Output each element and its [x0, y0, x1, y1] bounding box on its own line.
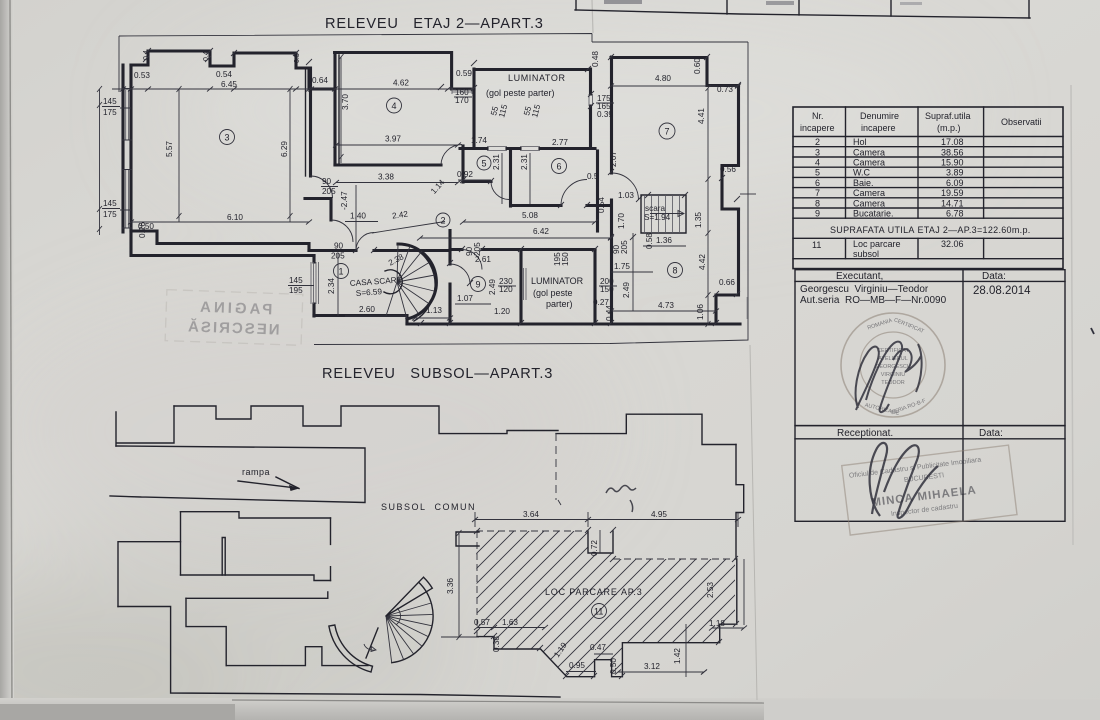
svg-text:4: 4 [392, 101, 397, 111]
svg-text:1.63: 1.63 [502, 618, 518, 627]
svg-text:3: 3 [815, 147, 820, 157]
svg-text:Data:: Data: [979, 428, 1003, 439]
svg-text:0.66: 0.66 [719, 278, 735, 287]
svg-text:2.53: 2.53 [706, 582, 715, 598]
svg-text:Camera: Camera [853, 188, 885, 198]
svg-text:0.50: 0.50 [609, 658, 618, 674]
svg-text:Observatii: Observatii [1001, 117, 1042, 127]
svg-text:2.77: 2.77 [552, 138, 568, 147]
svg-text:(m.p.): (m.p.) [937, 123, 961, 133]
svg-text:Denumire: Denumire [860, 111, 899, 121]
svg-text:0.39: 0.39 [597, 110, 613, 119]
svg-text:Aut.seria RO—MB—F—Nr.0090: Aut.seria RO—MB—F—Nr.0090 [800, 295, 947, 306]
svg-text:PAGINA: PAGINA [197, 299, 273, 319]
svg-text:145: 145 [289, 276, 303, 285]
svg-text:38.56: 38.56 [941, 147, 964, 157]
svg-text:2.49: 2.49 [488, 279, 497, 295]
svg-text:0.54: 0.54 [216, 70, 232, 79]
svg-text:4.80: 4.80 [655, 74, 671, 83]
svg-text:parter): parter) [546, 299, 573, 309]
svg-text:6.42: 6.42 [533, 227, 549, 236]
svg-text:Bucatarie.: Bucatarie. [853, 209, 894, 219]
svg-text:205: 205 [331, 252, 345, 261]
svg-text:6.45: 6.45 [221, 80, 237, 89]
svg-text:5.57: 5.57 [165, 141, 174, 157]
svg-text:SUBSOL COMUN: SUBSOL COMUN [381, 502, 476, 512]
svg-text:0.57: 0.57 [474, 618, 490, 627]
svg-text:3.38: 3.38 [378, 173, 394, 182]
svg-text:0.47: 0.47 [590, 643, 606, 652]
svg-text:145: 145 [103, 97, 117, 106]
svg-text:1.07: 1.07 [457, 294, 473, 303]
svg-text:2.34: 2.34 [327, 278, 336, 294]
svg-text:S=1.94: S=1.94 [644, 213, 671, 222]
svg-text:1.03: 1.03 [618, 191, 634, 200]
svg-text:32.06: 32.06 [941, 239, 964, 249]
svg-text:1.13: 1.13 [426, 306, 442, 315]
svg-text:GEORGESCU: GEORGESCU [875, 364, 911, 370]
svg-text:0.56: 0.56 [720, 165, 736, 174]
svg-text:0.95: 0.95 [569, 661, 585, 670]
svg-text:175: 175 [103, 210, 117, 219]
svg-text:90: 90 [322, 177, 332, 186]
svg-text:6.10: 6.10 [227, 213, 243, 222]
svg-text:Camera: Camera [853, 158, 885, 168]
svg-text:3: 3 [225, 133, 230, 143]
svg-text:6: 6 [815, 178, 820, 188]
svg-text:Baie.: Baie. [853, 178, 874, 188]
svg-text:incapere: incapere [861, 123, 896, 133]
svg-text:1.70: 1.70 [617, 213, 626, 229]
svg-text:9: 9 [815, 209, 820, 219]
svg-text:Camera: Camera [853, 198, 885, 208]
svg-text:8: 8 [815, 198, 820, 208]
svg-text:4: 4 [815, 158, 820, 168]
svg-text:150: 150 [561, 252, 570, 266]
svg-text:4.41: 4.41 [697, 108, 706, 124]
svg-text:Loc parcare: Loc parcare [853, 239, 901, 249]
svg-text:scara: scara [645, 204, 665, 213]
svg-text:Hol: Hol [853, 137, 867, 147]
svg-text:6: 6 [557, 162, 562, 172]
svg-text:2.07: 2.07 [609, 151, 618, 167]
svg-text:0.54: 0.54 [597, 197, 606, 213]
svg-text:0.38: 0.38 [492, 636, 501, 652]
svg-text:2: 2 [441, 216, 446, 226]
svg-text:14.71: 14.71 [941, 198, 964, 208]
svg-text:2.31: 2.31 [492, 154, 501, 170]
svg-text:Camera: Camera [853, 147, 885, 157]
svg-text:Receptionat.: Receptionat. [837, 428, 893, 439]
svg-text:-2.47: -2.47 [340, 191, 349, 210]
svg-text:1.36: 1.36 [656, 236, 672, 245]
svg-text:4.73: 4.73 [658, 301, 674, 310]
svg-text:LUMINATOR: LUMINATOR [531, 276, 584, 286]
svg-text:19.59: 19.59 [941, 188, 964, 198]
svg-text:Executant,: Executant, [836, 271, 883, 282]
svg-text:SUPRAFATA UTILA ETAJ 2—AP.3=12: SUPRAFATA UTILA ETAJ 2—AP.3=122.60m.p. [830, 225, 1031, 235]
svg-text:205: 205 [473, 242, 482, 256]
svg-text:1.75: 1.75 [614, 262, 630, 271]
svg-text:Data:: Data: [982, 271, 1006, 282]
svg-text:subsol: subsol [853, 249, 879, 259]
svg-text:1.74: 1.74 [471, 136, 487, 145]
svg-text:3.97: 3.97 [385, 135, 401, 144]
svg-text:2: 2 [815, 137, 820, 147]
svg-text:145: 145 [103, 199, 117, 208]
svg-text:1.42: 1.42 [673, 648, 682, 664]
svg-text:0.60: 0.60 [693, 58, 702, 74]
svg-text:11: 11 [812, 240, 821, 250]
svg-text:1: 1 [339, 267, 344, 277]
svg-text:0.64: 0.64 [312, 76, 328, 85]
svg-text:(gol peste parter): (gol peste parter) [486, 88, 555, 98]
svg-text:7: 7 [665, 127, 670, 137]
svg-text:7: 7 [815, 188, 820, 198]
svg-text:incapere: incapere [800, 123, 835, 133]
svg-text:205: 205 [620, 240, 629, 254]
svg-text:Nr.: Nr. [812, 111, 824, 121]
svg-text:LUMINATOR: LUMINATOR [508, 73, 566, 83]
svg-text:TEODOR: TEODOR [881, 380, 905, 386]
svg-text:6.09: 6.09 [946, 178, 964, 188]
svg-text:RELEVEU SUBSOL—APART.3: RELEVEU SUBSOL—APART.3 [322, 366, 553, 382]
svg-text:S=6.59: S=6.59 [356, 287, 383, 298]
svg-text:11: 11 [594, 607, 603, 617]
svg-text:2.61: 2.61 [475, 255, 491, 264]
svg-text:28.08.2014: 28.08.2014 [973, 285, 1031, 297]
svg-text:NESCRISĂ: NESCRISĂ [186, 318, 280, 338]
svg-text:3.64: 3.64 [523, 510, 539, 519]
svg-text:6.78: 6.78 [946, 209, 964, 219]
svg-text:Georgescu Virginiu—Teodor: Georgescu Virginiu—Teodor [800, 284, 929, 295]
svg-text:2.60: 2.60 [359, 305, 375, 314]
svg-text:6.29: 6.29 [280, 141, 289, 157]
svg-text:3.89: 3.89 [946, 168, 964, 178]
svg-text:1.40: 1.40 [350, 212, 366, 221]
svg-text:2.31: 2.31 [520, 154, 529, 170]
svg-text:15.90: 15.90 [941, 158, 964, 168]
svg-text:1.20: 1.20 [494, 307, 510, 316]
svg-text:W.C: W.C [853, 168, 870, 178]
svg-text:205: 205 [322, 187, 336, 196]
svg-text:RELEVEU ETAJ 2—APART.3: RELEVEU ETAJ 2—APART.3 [325, 16, 544, 32]
svg-text:(gol peste: (gol peste [533, 288, 573, 298]
svg-text:0.73: 0.73 [717, 85, 733, 94]
svg-text:1.35: 1.35 [694, 212, 703, 228]
svg-text:5: 5 [815, 168, 820, 178]
svg-text:8: 8 [673, 266, 678, 276]
svg-text:0.48: 0.48 [591, 51, 600, 67]
svg-text:0.5: 0.5 [294, 53, 301, 63]
svg-text:1.06: 1.06 [696, 304, 705, 320]
svg-text:17.08: 17.08 [941, 137, 964, 147]
svg-text:9: 9 [476, 280, 481, 290]
svg-text:0.44: 0.44 [605, 305, 614, 321]
svg-text:4.62: 4.62 [393, 79, 409, 88]
svg-text:LOC PARCARE AP.3: LOC PARCARE AP.3 [545, 587, 643, 597]
svg-text:4.42: 4.42 [698, 254, 707, 270]
svg-text:3.36: 3.36 [446, 578, 455, 594]
svg-text:3.12: 3.12 [644, 662, 660, 671]
svg-text:rampa: rampa [242, 467, 270, 477]
svg-text:0.26: 0.26 [138, 222, 147, 238]
svg-text:175: 175 [103, 108, 117, 117]
svg-text:90: 90 [334, 242, 344, 251]
svg-text:5: 5 [482, 159, 487, 169]
svg-text:3.70: 3.70 [341, 94, 350, 110]
svg-text:5.08: 5.08 [522, 211, 538, 220]
svg-text:0.5: 0.5 [587, 172, 599, 181]
svg-text:0.59: 0.59 [456, 69, 472, 78]
svg-text:0.58: 0.58 [645, 233, 654, 249]
svg-text:0.53: 0.53 [134, 71, 150, 80]
svg-text:2.49: 2.49 [622, 282, 631, 298]
svg-text:1.18: 1.18 [709, 619, 725, 628]
svg-text:4.95: 4.95 [651, 510, 667, 519]
svg-text:0.72: 0.72 [590, 540, 599, 556]
svg-text:Supraf.utila: Supraf.utila [925, 111, 971, 121]
